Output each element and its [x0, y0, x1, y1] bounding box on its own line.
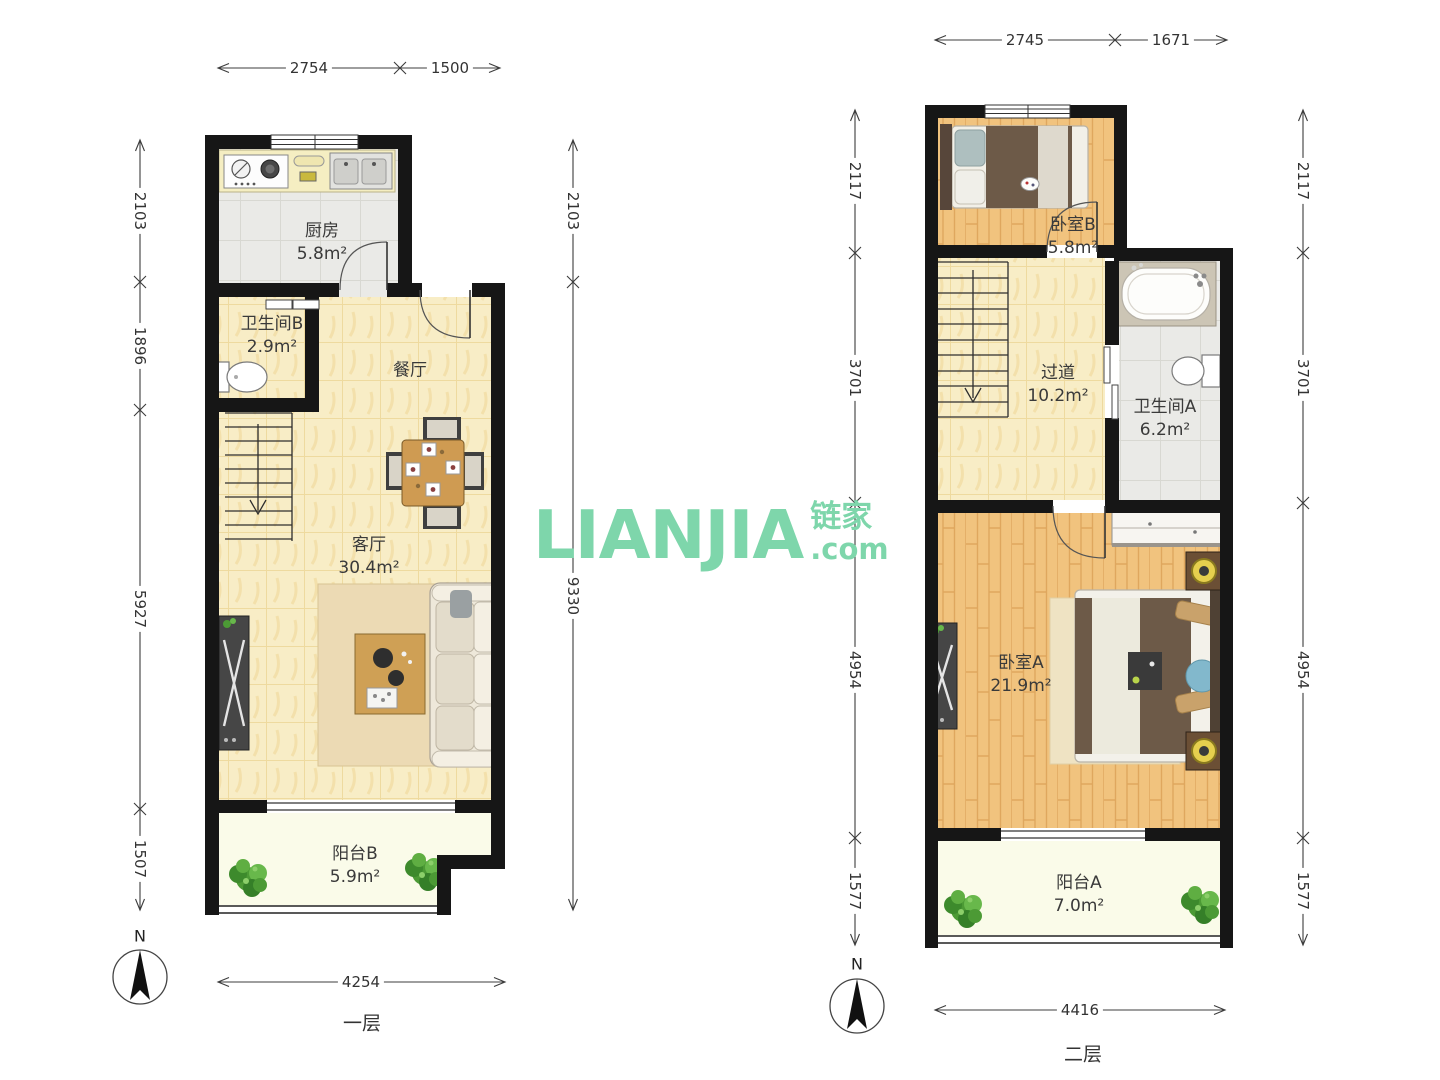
dim-label: 4954: [1294, 647, 1312, 693]
room-area: 2.9m²: [241, 336, 304, 359]
floor1-name: 一层: [343, 1009, 381, 1036]
dim-label: 2117: [846, 158, 864, 204]
dim-label: 5927: [131, 586, 149, 632]
dim-label: 1577: [846, 868, 864, 914]
room-name: 客厅: [338, 534, 399, 557]
room-label-kitchen: 厨房 5.8m²: [297, 220, 347, 266]
dim-label: 4416: [1057, 1001, 1103, 1019]
dim-label: 2117: [1294, 158, 1312, 204]
room-area: 21.9m²: [990, 675, 1051, 698]
room-area: 5.8m²: [297, 243, 347, 266]
floor2-name: 二层: [1064, 1040, 1102, 1067]
dim-label: 3701: [846, 355, 864, 401]
room-name: 阳台A: [1054, 872, 1104, 895]
room-name: 厨房: [297, 220, 347, 243]
room-label-balcony-a: 阳台A 7.0m²: [1054, 872, 1104, 918]
room-label-bedroom-b: 卧室B 5.8m²: [1048, 214, 1098, 260]
room-name: 卫生间B: [241, 313, 304, 336]
dim-label: 4954: [846, 647, 864, 693]
room-area: 6.2m²: [1134, 419, 1197, 442]
dim-label: 9330: [564, 573, 582, 619]
dim-label: 3701: [1294, 355, 1312, 401]
dim-label: 1896: [131, 323, 149, 369]
room-name: 过道: [1027, 362, 1088, 385]
dim-label: 1500: [427, 59, 473, 77]
lianjia-logo-side: 链家 .com: [810, 500, 888, 566]
dim-label: 2103: [564, 188, 582, 234]
lianjia-watermark: LIANJIA 链家 .com: [533, 500, 889, 570]
room-area: 30.4m²: [338, 557, 399, 580]
dim-label: 4254: [338, 973, 384, 991]
room-label-hallway: 过道 10.2m²: [1027, 362, 1088, 408]
lianjia-logo-text: LIANJIA: [533, 500, 803, 570]
dim-label: 2754: [286, 59, 332, 77]
lianjia-com-text: .com: [810, 534, 888, 566]
room-name: 卧室B: [1048, 214, 1098, 237]
room-label-bedroom-a: 卧室A 21.9m²: [990, 652, 1051, 698]
room-label-bathroom-a: 卫生间A 6.2m²: [1134, 396, 1197, 442]
dim-label: 1577: [1294, 868, 1312, 914]
room-area: 5.8m²: [1048, 237, 1098, 260]
dim-label: 2103: [131, 188, 149, 234]
room-name: 卧室A: [990, 652, 1051, 675]
lianjia-cjk-text: 链家: [810, 500, 872, 534]
compass-n-label-2: N: [851, 955, 863, 974]
room-label-balcony-b: 阳台B 5.9m²: [330, 843, 380, 889]
room-area: 10.2m²: [1027, 385, 1088, 408]
room-label-living: 客厅 30.4m²: [338, 534, 399, 580]
room-label-bathroom-b: 卫生间B 2.9m²: [241, 313, 304, 359]
room-area: 5.9m²: [330, 866, 380, 889]
room-name: 卫生间A: [1134, 396, 1197, 419]
room-name: 餐厅: [393, 360, 427, 383]
floorplan-canvas: 厨房 5.8m² 卫生间B 2.9m² 餐厅 客厅 30.4m² 阳台B 5.9…: [0, 0, 1440, 1080]
compass-n-label: N: [134, 927, 146, 946]
dim-label: 2745: [1002, 31, 1048, 49]
room-name: 阳台B: [330, 843, 380, 866]
room-area: 7.0m²: [1054, 895, 1104, 918]
room-label-dining: 餐厅: [393, 360, 427, 383]
labels-overlay: 厨房 5.8m² 卫生间B 2.9m² 餐厅 客厅 30.4m² 阳台B 5.9…: [0, 0, 1440, 1080]
dim-label: 1671: [1148, 31, 1194, 49]
dim-label: 1507: [131, 836, 149, 882]
